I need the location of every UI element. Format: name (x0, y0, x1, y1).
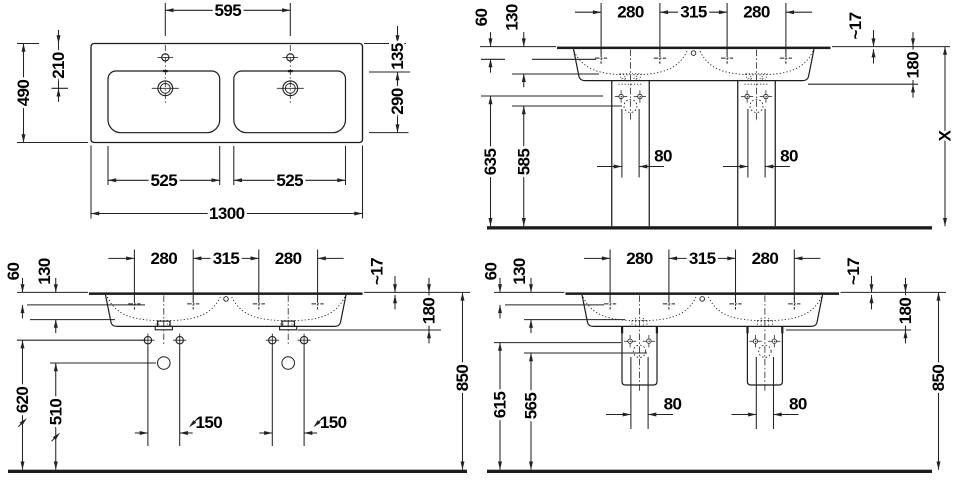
svg-text:280: 280 (752, 249, 779, 268)
svg-text:595: 595 (215, 1, 242, 20)
svg-text:585: 585 (514, 149, 533, 176)
svg-text:315: 315 (689, 249, 716, 268)
svg-text:315: 315 (213, 249, 240, 268)
svg-text:130: 130 (510, 258, 529, 285)
svg-text:280: 280 (617, 3, 644, 22)
svg-text:565: 565 (522, 393, 541, 420)
svg-text:280: 280 (151, 249, 178, 268)
svg-text:60: 60 (4, 263, 23, 281)
svg-text:850: 850 (453, 365, 472, 392)
svg-text:510: 510 (46, 399, 65, 426)
svg-text:280: 280 (743, 3, 770, 22)
svg-text:~17: ~17 (368, 258, 387, 285)
svg-text:180: 180 (420, 298, 439, 325)
svg-text:~17: ~17 (846, 12, 865, 39)
svg-text:290: 290 (388, 88, 407, 115)
svg-text:315: 315 (680, 3, 707, 22)
svg-text:150: 150 (320, 413, 347, 432)
svg-text:525: 525 (276, 171, 303, 190)
svg-text:60: 60 (482, 263, 501, 281)
svg-text:80: 80 (780, 147, 798, 166)
svg-text:X: X (936, 129, 955, 141)
svg-text:130: 130 (35, 258, 54, 285)
svg-text:525: 525 (151, 171, 178, 190)
svg-text:850: 850 (929, 365, 948, 392)
svg-text:615: 615 (491, 392, 510, 419)
svg-text:130: 130 (503, 4, 522, 31)
svg-text:60: 60 (472, 9, 491, 27)
svg-text:80: 80 (664, 395, 682, 414)
svg-text:280: 280 (626, 249, 653, 268)
svg-text:180: 180 (904, 52, 923, 79)
svg-text:490: 490 (14, 80, 33, 107)
svg-text:210: 210 (49, 52, 68, 79)
svg-text:280: 280 (275, 249, 302, 268)
svg-text:80: 80 (654, 147, 672, 166)
svg-text:~17: ~17 (844, 258, 863, 285)
svg-text:135: 135 (388, 43, 407, 70)
svg-text:1300: 1300 (209, 204, 245, 223)
svg-text:80: 80 (789, 395, 807, 414)
svg-text:620: 620 (13, 387, 32, 414)
svg-text:635: 635 (481, 149, 500, 176)
svg-text:180: 180 (896, 298, 915, 325)
svg-text:150: 150 (196, 413, 223, 432)
